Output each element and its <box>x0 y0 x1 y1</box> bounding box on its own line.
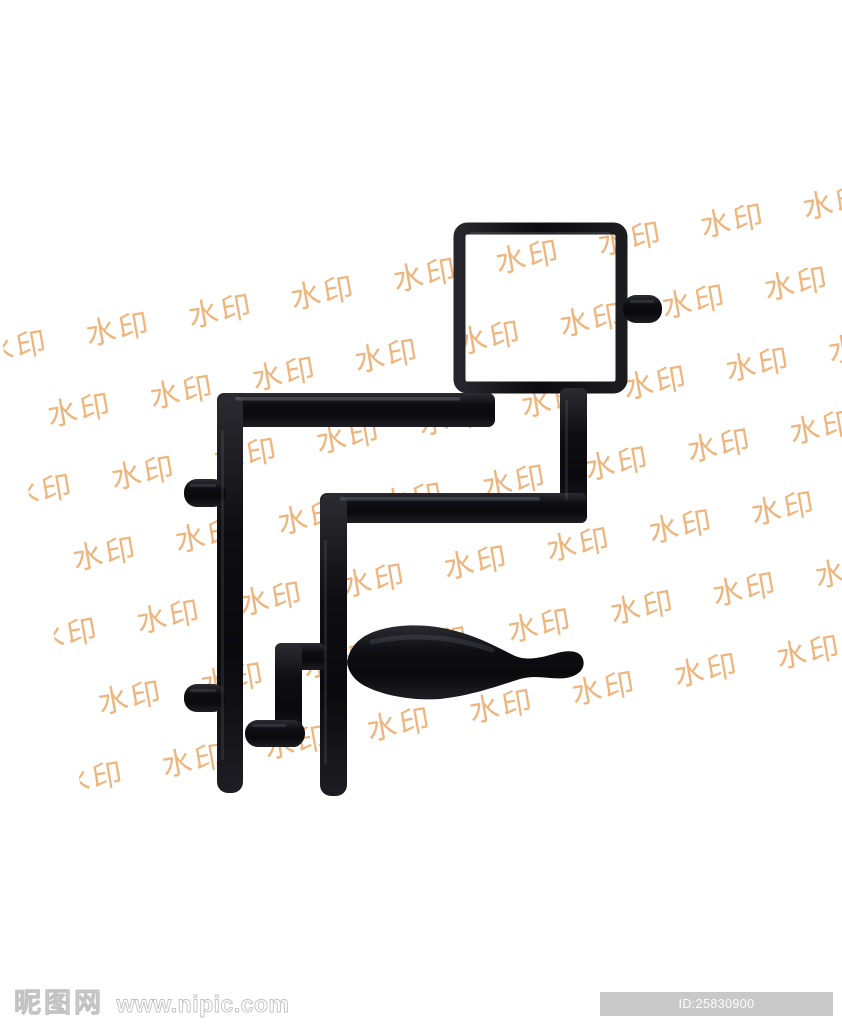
svg-text:昵图网 www.nipic.com: 昵图网 www.nipic.com <box>14 988 290 1018</box>
square-right-nub <box>623 295 662 323</box>
product-image-black-plastic-runner <box>0 0 842 1024</box>
stock-photo-preview: 水印水印水印水印水印水印水印水印水印水印水印水印水印水印水印水印水印水印水印水印… <box>0 0 842 1024</box>
left-nub-upper <box>184 479 226 507</box>
fish-stroke <box>347 625 584 699</box>
image-id-badge: ID:25830900 NO:20221122101944414106 <box>600 992 833 1016</box>
left-nub-lower <box>184 684 226 712</box>
nipic-logo: 昵图网 www.nipic.com <box>0 975 330 1024</box>
site-url-text: www.nipic.com <box>115 991 289 1017</box>
sprue-shape <box>184 229 662 797</box>
left-vertical-bar <box>217 393 243 793</box>
square-frame <box>460 229 622 388</box>
site-name-text: 昵图网 <box>14 988 104 1018</box>
image-id-text: ID:25830900 NO:20221122101944414106 <box>632 997 802 1024</box>
